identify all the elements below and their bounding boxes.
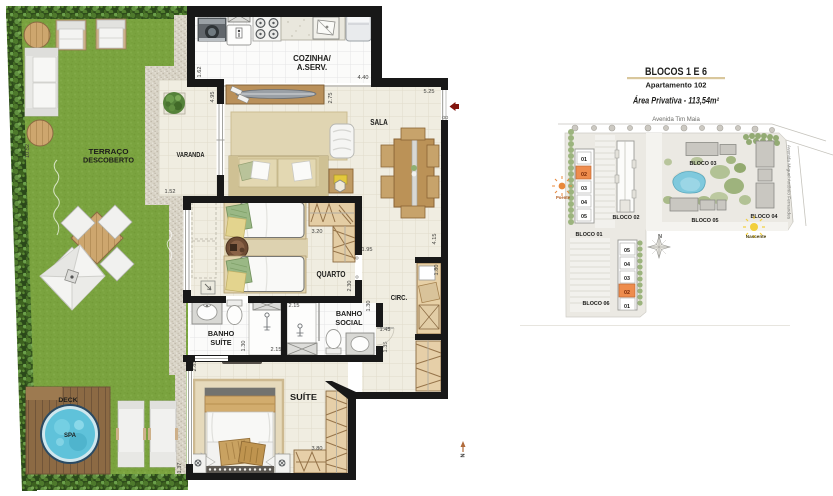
svg-text:04: 04 <box>624 262 630 268</box>
svg-text:10.52: 10.52 <box>25 144 31 158</box>
svg-text:BLOCO 01: BLOCO 01 <box>576 232 603 238</box>
svg-text:2.15: 2.15 <box>289 303 300 309</box>
svg-text:BANHO: BANHO <box>336 309 363 318</box>
svg-text:SPA: SPA <box>64 433 77 439</box>
svg-text:BLOCO 05: BLOCO 05 <box>692 218 719 224</box>
svg-text:1.95: 1.95 <box>362 247 373 253</box>
svg-text:4.95: 4.95 <box>210 92 216 103</box>
svg-text:SOCIAL: SOCIAL <box>335 318 363 327</box>
svg-text:01: 01 <box>581 157 587 163</box>
svg-text:Apartamento 102: Apartamento 102 <box>646 81 707 90</box>
svg-text:1.37: 1.37 <box>177 463 183 474</box>
svg-text:02: 02 <box>624 290 630 296</box>
svg-text:2.30: 2.30 <box>347 281 353 292</box>
svg-text:1.30: 1.30 <box>366 301 372 312</box>
svg-text:BLOCOS 1 E 6: BLOCOS 1 E 6 <box>645 66 707 78</box>
svg-text:SUÍTE: SUÍTE <box>290 392 317 402</box>
svg-text:Área Privativa - 113,54m²: Área Privativa - 113,54m² <box>632 96 720 106</box>
svg-text:05: 05 <box>624 248 630 254</box>
svg-text:A.SERV.: A.SERV. <box>297 63 327 72</box>
svg-text:1.30: 1.30 <box>241 341 247 352</box>
svg-text:DECK: DECK <box>58 397 77 404</box>
svg-text:BANHO: BANHO <box>208 329 235 338</box>
svg-text:Nascente: Nascente <box>746 234 767 239</box>
svg-text:SUÍTE: SUÍTE <box>210 338 231 347</box>
svg-text:01: 01 <box>624 304 630 310</box>
svg-text:2.15: 2.15 <box>271 347 282 353</box>
svg-text:1.80: 1.80 <box>434 265 440 276</box>
svg-text:QUARTO: QUARTO <box>317 270 346 279</box>
svg-text:1.52: 1.52 <box>165 189 176 195</box>
svg-text:Avenida Miguel Antônio Fernand: Avenida Miguel Antônio Fernandes <box>786 145 792 220</box>
svg-text:BLOCO 03: BLOCO 03 <box>690 161 717 167</box>
svg-text:5.25: 5.25 <box>424 89 435 95</box>
svg-text:CIRC.: CIRC. <box>391 293 408 302</box>
svg-text:02: 02 <box>581 172 587 178</box>
svg-text:3.80: 3.80 <box>312 446 323 452</box>
svg-text:BLOCO 02: BLOCO 02 <box>613 215 640 221</box>
svg-text:3.20: 3.20 <box>312 229 323 235</box>
svg-text:04: 04 <box>581 200 587 206</box>
svg-text:Avenida Tim Maia: Avenida Tim Maia <box>652 117 700 123</box>
svg-text:VARANDA: VARANDA <box>177 150 206 159</box>
svg-text:COZINHA/: COZINHA/ <box>293 54 332 63</box>
svg-text:03: 03 <box>581 186 587 192</box>
svg-text:4.15: 4.15 <box>432 234 438 245</box>
svg-text:2.75: 2.75 <box>328 93 334 104</box>
svg-text:4.40: 4.40 <box>358 75 369 81</box>
svg-text:SALA: SALA <box>370 118 388 127</box>
svg-text:1.62: 1.62 <box>197 67 203 78</box>
svg-text:Poente: Poente <box>556 195 571 200</box>
svg-text:DESCOBERTO: DESCOBERTO <box>83 156 134 165</box>
svg-text:05: 05 <box>581 214 587 220</box>
svg-text:BLOCO 06: BLOCO 06 <box>583 301 610 307</box>
svg-text:N: N <box>461 453 467 457</box>
svg-text:03: 03 <box>624 276 630 282</box>
